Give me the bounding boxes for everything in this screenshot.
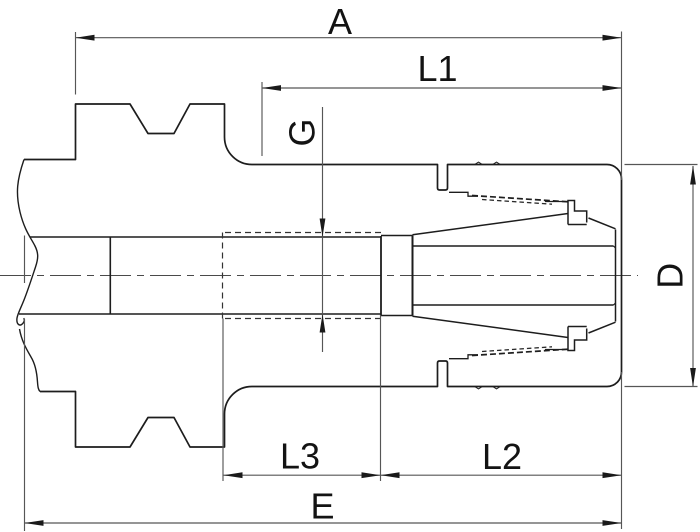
svg-text:D: D xyxy=(650,263,691,289)
svg-text:L1: L1 xyxy=(417,48,457,89)
svg-text:L3: L3 xyxy=(280,436,320,477)
svg-text:E: E xyxy=(310,486,334,527)
svg-text:L2: L2 xyxy=(482,436,522,477)
svg-text:G: G xyxy=(282,118,323,146)
svg-text:A: A xyxy=(328,1,352,42)
